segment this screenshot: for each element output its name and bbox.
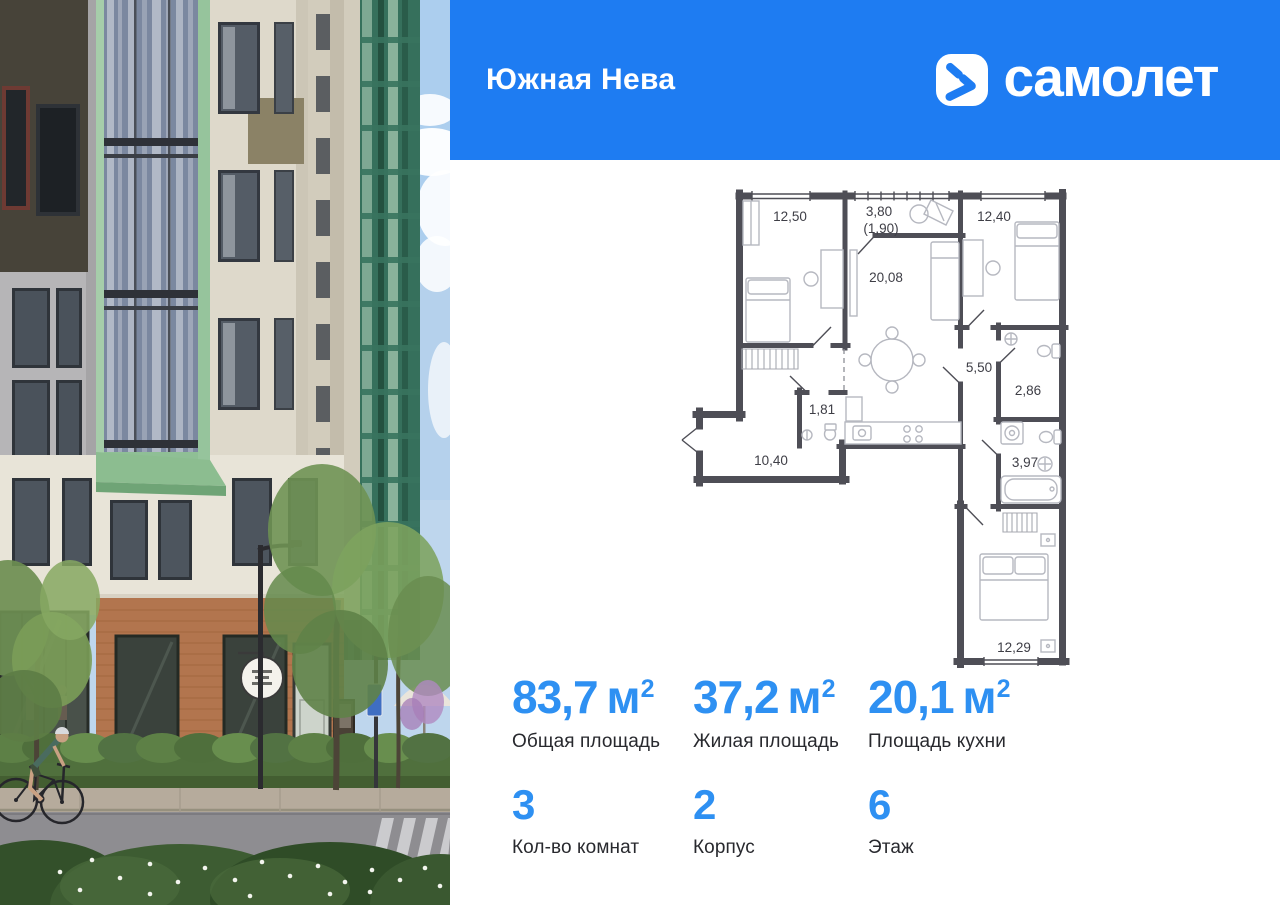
room-area-label: 12,50 [773,209,807,224]
room-area-label: 12,29 [997,640,1031,655]
building-photo [0,0,450,905]
listing-card: Южная Нева самолет [0,0,1280,905]
room-area-label: 2,86 [1015,383,1041,398]
stat-building-label: Корпус [693,837,868,859]
room-area-label: 12,40 [977,209,1011,224]
stat-building: 2 Корпус [693,784,868,859]
floor-plan: 12,50 3,80 (1,90) 12,40 20,08 5,50 2,86 … [675,188,1070,668]
stat-floor-value: 6 [868,784,914,826]
gray-building [0,0,96,470]
stat-kitchen-area: 20,1м2 Площадь кухни [868,674,1009,753]
stat-total-area: 83,7м2 Общая площадь [512,674,693,753]
brand-logo: самолет [936,54,1218,106]
sidewalk [0,788,450,812]
stat-kitchen-area-label: Площадь кухни [868,731,1009,753]
stat-living-area: 37,2м2 Жилая площадь [693,674,868,753]
room-area-label: 20,08 [869,270,903,285]
room-area-label: 5,50 [966,360,992,375]
project-title: Южная Нева [486,63,675,97]
stats-row-areas: 83,7м2 Общая площадь 37,2м2 Жилая площад… [512,674,1009,753]
room-area-label: 3,80 [866,204,892,219]
room-area-label: 1,81 [809,402,835,417]
plan-furniture [743,200,1061,652]
green-glass-column [96,0,226,496]
room-area-label: (1,90) [863,221,898,236]
stat-rooms-value: 3 [512,784,693,826]
room-area-label: 3,97 [1012,455,1038,470]
stat-total-area-value: 83,7м2 [512,674,693,720]
header: Южная Нева самолет [450,0,1280,160]
room-area-label: 10,40 [754,453,788,468]
stat-building-value: 2 [693,784,868,826]
info-panel: Южная Нева самолет [450,0,1280,905]
stat-kitchen-area-value: 20,1м2 [868,674,1009,720]
stat-floor: 6 Этаж [868,784,914,859]
stat-rooms: 3 Кол-во комнат [512,784,693,859]
flower-bushes [0,840,450,905]
brand-name: самолет [1003,50,1218,105]
cream-building [196,0,308,470]
stat-living-area-value: 37,2м2 [693,674,868,720]
stat-floor-label: Этаж [868,837,914,859]
stat-rooms-label: Кол-во комнат [512,837,693,859]
stats-row-info: 3 Кол-во комнат 2 Корпус 6 Этаж [512,784,914,859]
samolet-logo-icon [936,54,988,106]
stat-total-area-label: Общая площадь [512,731,693,753]
stat-living-area-label: Жилая площадь [693,731,868,753]
